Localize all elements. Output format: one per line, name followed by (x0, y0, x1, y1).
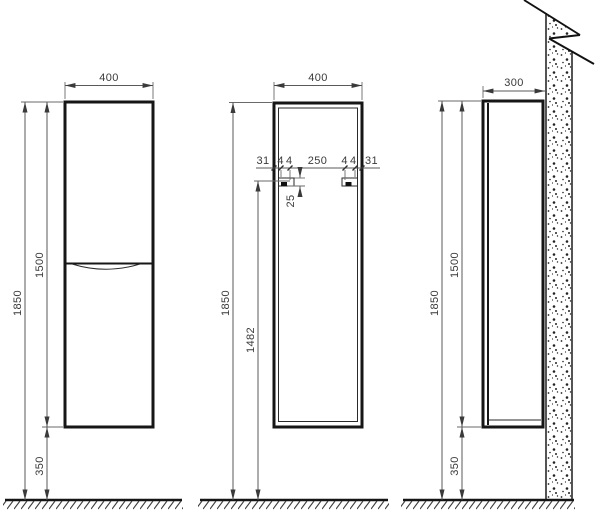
dim-side-total-height: 1850 (429, 101, 481, 500)
dim-label-hanger-offset: 25 (285, 194, 297, 207)
dim-side-floor-clearance: 350 (449, 427, 462, 500)
dim-label-side-floor-clearance: 350 (449, 456, 461, 476)
dim-front-cabinet-height: 1500 (34, 102, 63, 427)
ground-hatch-left (3, 501, 183, 510)
dim-hanger-offset: 25 (285, 170, 305, 208)
technical-drawing: 400 1850 1500 350 (0, 0, 600, 516)
mounting-hole-left (281, 182, 287, 186)
dim-label-chain-31-left: 31 (256, 155, 269, 167)
hanging-bracket-right (342, 178, 358, 186)
dim-side-depth: 300 (483, 77, 545, 98)
ground-hatch-right (401, 501, 575, 510)
handle-groove (72, 264, 140, 269)
dim-label-chain-44-left: 44 (277, 155, 294, 167)
dim-label-side-total-height: 1850 (429, 290, 441, 316)
dim-label-front-floor-clearance: 350 (34, 456, 46, 476)
dim-label-front-cabinet-height: 1500 (34, 252, 46, 278)
front-view: 400 1850 1500 350 (12, 72, 153, 500)
dim-front-width: 400 (65, 72, 153, 99)
dim-label-carcass-width: 400 (308, 72, 328, 84)
wall-section (524, 0, 594, 500)
side-view: 300 1850 1500 350 (429, 77, 545, 500)
dim-side-cabinet-height: 1500 (449, 101, 481, 427)
ground-hatch-middle (198, 501, 389, 510)
carcass-outline (274, 103, 362, 427)
hanging-bracket-left (279, 178, 295, 186)
dim-label-side-cabinet-height: 1500 (449, 252, 461, 278)
dim-label-side-depth: 300 (504, 77, 524, 89)
dim-hanger-hole-height: 1482 (245, 181, 290, 500)
ground-line (3, 500, 575, 510)
dim-front-total-height: 1850 (12, 102, 63, 500)
dim-label-chain-44-right: 44 (341, 155, 358, 167)
carcass-view: 400 31 44 250 44 31 25 (220, 72, 380, 500)
dim-label-chain-250: 250 (308, 155, 328, 167)
dim-label-front-width: 400 (99, 72, 119, 84)
dim-front-floor-clearance: 350 (34, 427, 47, 500)
dim-label-front-total-height: 1850 (12, 290, 24, 316)
mounting-hole-right (346, 182, 352, 186)
dim-label-hanger-hole-height: 1482 (245, 327, 257, 353)
dim-label-carcass-total-height: 1850 (220, 290, 232, 316)
side-outline (483, 101, 543, 427)
drawing-svg: 400 1850 1500 350 (0, 0, 600, 516)
dim-carcass-width: 400 (274, 72, 362, 100)
dim-label-chain-31-right: 31 (365, 155, 378, 167)
wall-fill (546, 13, 579, 500)
